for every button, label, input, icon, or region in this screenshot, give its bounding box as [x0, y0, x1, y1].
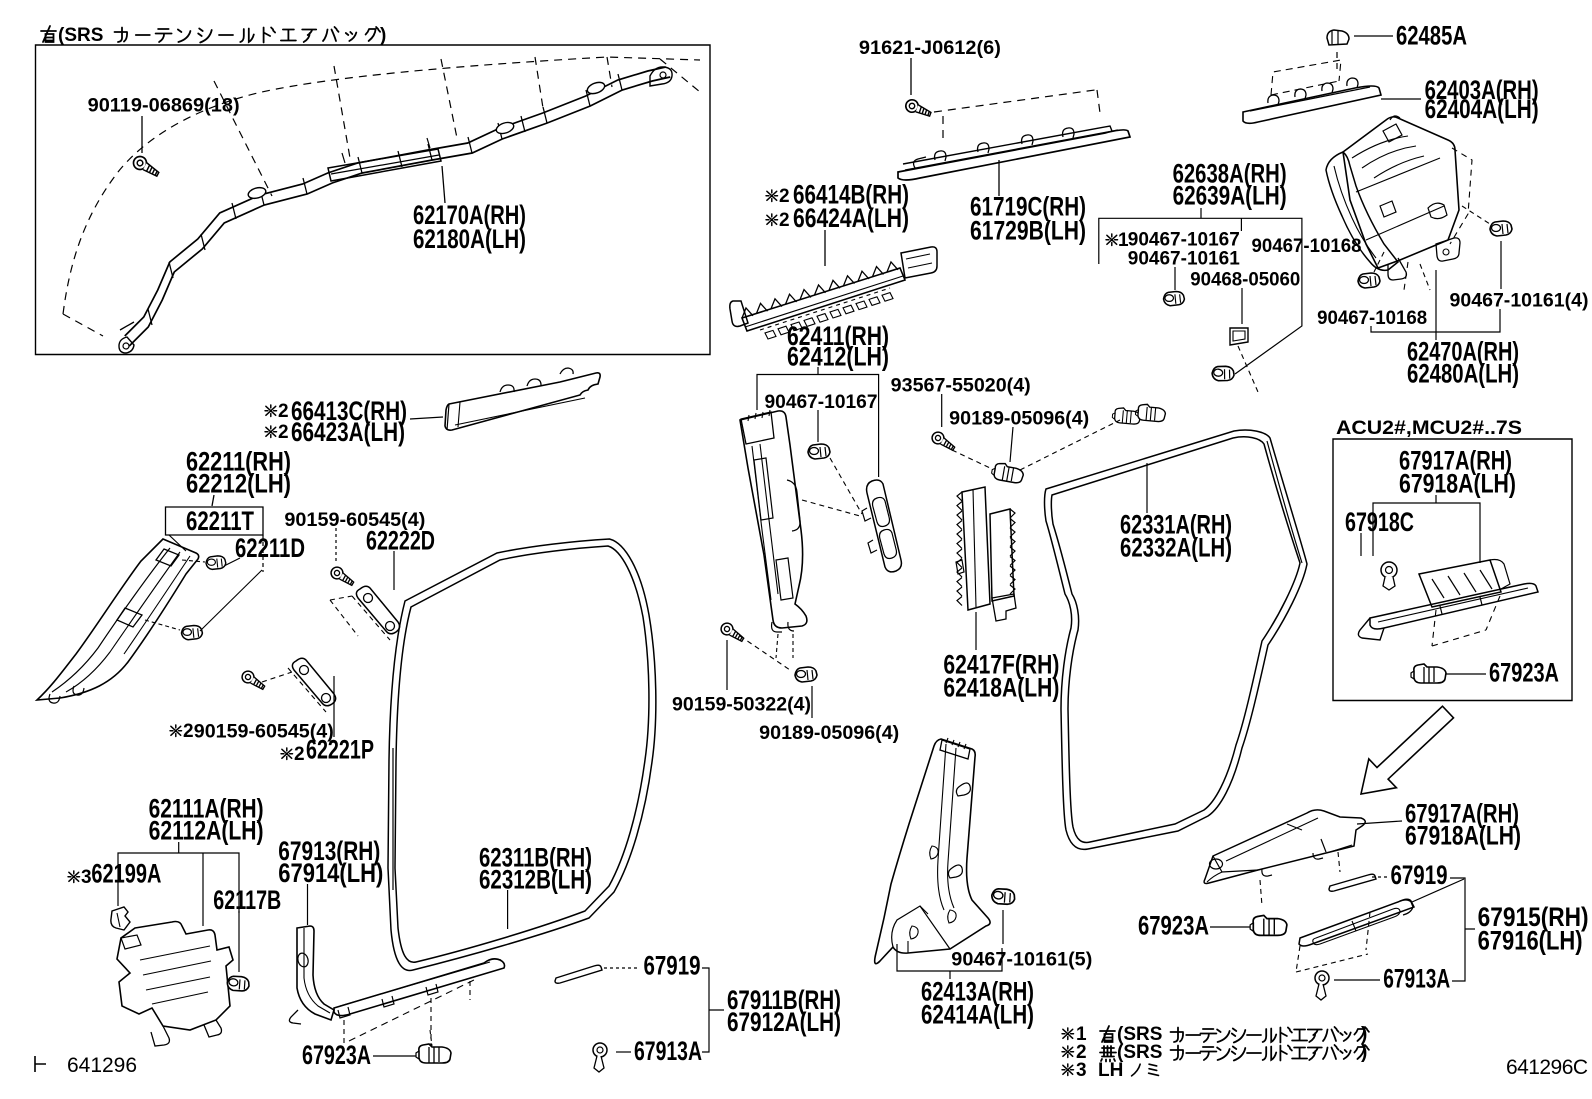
svg-text:3: 3 — [81, 867, 92, 888]
svg-text:67916(LH): 67916(LH) — [1478, 926, 1583, 956]
svg-text:2: 2 — [278, 401, 289, 422]
svg-text:67913A: 67913A — [634, 1036, 702, 1066]
svg-text:67918C: 67918C — [1345, 507, 1414, 537]
svg-text:): ) — [1361, 1042, 1367, 1063]
svg-text:90119-06869(18): 90119-06869(18) — [88, 95, 240, 117]
svg-text:62414A(LH): 62414A(LH) — [921, 1000, 1034, 1030]
svg-text:90189-05096(4): 90189-05096(4) — [759, 722, 899, 744]
svg-text:62112A(LH): 62112A(LH) — [149, 816, 264, 846]
svg-text:91621-J0612(6): 91621-J0612(6) — [859, 37, 1001, 59]
svg-text:(SRS: (SRS — [58, 25, 103, 46]
svg-text:ACU2#,MCU2#..7S: ACU2#,MCU2#..7S — [1336, 418, 1522, 439]
svg-text:66423A(LH): 66423A(LH) — [291, 417, 405, 447]
svg-text:67919: 67919 — [1391, 860, 1448, 890]
svg-text:67923A: 67923A — [1489, 658, 1559, 688]
svg-text:LH: LH — [1098, 1060, 1123, 1081]
svg-text:90467-10161: 90467-10161 — [1128, 248, 1240, 270]
svg-text:641296C: 641296C — [1506, 1056, 1588, 1079]
svg-text:67918A(LH): 67918A(LH) — [1399, 469, 1516, 499]
svg-text:62480A(LH): 62480A(LH) — [1407, 359, 1519, 389]
svg-text:67923A: 67923A — [1138, 911, 1209, 941]
svg-text:90467-10167: 90467-10167 — [765, 391, 878, 413]
svg-text:67918A(LH): 67918A(LH) — [1405, 821, 1521, 851]
svg-text:62418A(LH): 62418A(LH) — [943, 673, 1059, 703]
svg-text:62412(LH): 62412(LH) — [787, 342, 889, 372]
svg-text:66424A(LH): 66424A(LH) — [793, 203, 909, 233]
svg-text:2: 2 — [779, 210, 790, 231]
svg-text:67912A(LH): 67912A(LH) — [727, 1007, 841, 1037]
svg-text:93567-55020(4): 93567-55020(4) — [891, 375, 1031, 397]
svg-text:90467-10161(4): 90467-10161(4) — [1450, 290, 1589, 312]
svg-text:67919: 67919 — [644, 951, 701, 981]
svg-text:90189-05096(4): 90189-05096(4) — [949, 408, 1089, 430]
svg-text:2: 2 — [278, 422, 289, 443]
svg-text:62485A: 62485A — [1396, 21, 1467, 51]
svg-text:(SRS: (SRS — [1117, 1042, 1162, 1063]
svg-text:3: 3 — [1076, 1060, 1087, 1081]
svg-text:62211D: 62211D — [235, 533, 305, 563]
svg-text:62180A(LH): 62180A(LH) — [413, 224, 526, 254]
svg-text:62332A(LH): 62332A(LH) — [1120, 533, 1232, 563]
svg-text:2: 2 — [294, 744, 305, 765]
svg-text:641296: 641296 — [67, 1054, 137, 1077]
svg-text:): ) — [380, 25, 386, 46]
svg-text:62117B: 62117B — [213, 885, 281, 915]
svg-text:90159-50322(4): 90159-50322(4) — [672, 694, 811, 716]
svg-text:62211T: 62211T — [186, 506, 254, 536]
svg-text:90467-10168: 90467-10168 — [1317, 307, 1427, 329]
svg-text:90467-10168: 90467-10168 — [1252, 235, 1362, 257]
svg-text:2: 2 — [779, 186, 790, 207]
svg-text:90467-10161(5): 90467-10161(5) — [951, 949, 1092, 971]
svg-text:2: 2 — [183, 721, 194, 742]
svg-text:62222D: 62222D — [366, 526, 435, 556]
svg-text:61729B(LH): 61729B(LH) — [970, 216, 1086, 246]
svg-text:62199A: 62199A — [91, 859, 161, 889]
svg-text:62404A(LH): 62404A(LH) — [1425, 94, 1539, 124]
svg-text:62639A(LH): 62639A(LH) — [1173, 181, 1287, 211]
svg-text:67923A: 67923A — [302, 1040, 371, 1070]
svg-text:90468-05060: 90468-05060 — [1190, 269, 1300, 291]
svg-text:62312B(LH): 62312B(LH) — [479, 865, 592, 895]
svg-text:62221P: 62221P — [306, 735, 374, 765]
svg-text:62212(LH): 62212(LH) — [186, 469, 291, 499]
svg-text:67913A: 67913A — [1383, 964, 1450, 994]
svg-text:67914(LH): 67914(LH) — [278, 858, 383, 888]
